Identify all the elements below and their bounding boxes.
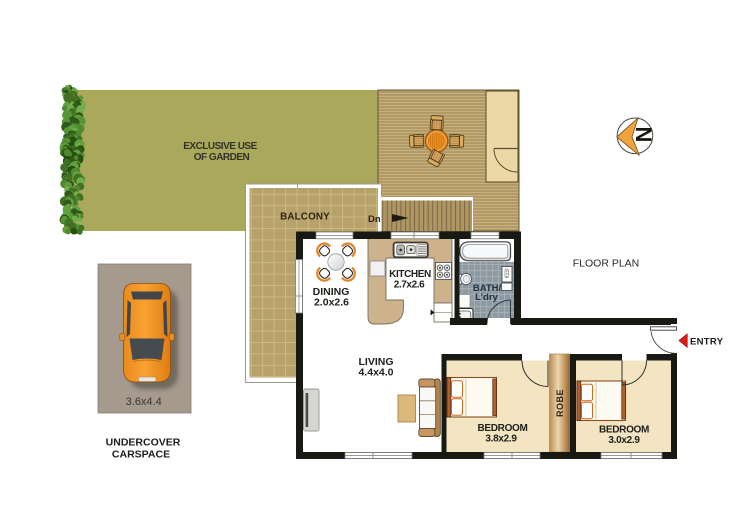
svg-text:BEDROOM: BEDROOM xyxy=(599,425,649,436)
svg-text:EXCLUSIVE USE: EXCLUSIVE USE xyxy=(183,141,257,152)
svg-text:2.0x2.6: 2.0x2.6 xyxy=(314,297,349,309)
svg-text:CARSPACE: CARSPACE xyxy=(112,449,170,461)
svg-text:3.6x4.4: 3.6x4.4 xyxy=(126,396,162,408)
svg-text:L’dry: L’dry xyxy=(475,292,498,303)
svg-text:BEDROOM: BEDROOM xyxy=(477,423,527,434)
svg-text:OF GARDEN: OF GARDEN xyxy=(194,152,250,163)
svg-text:2.7x2.6: 2.7x2.6 xyxy=(394,280,425,291)
svg-text:FLOOR PLAN: FLOOR PLAN xyxy=(573,258,640,270)
svg-text:4.4x4.0: 4.4x4.0 xyxy=(358,367,393,379)
svg-text:3.8x2.9: 3.8x2.9 xyxy=(485,434,517,445)
svg-text:BALCONY: BALCONY xyxy=(280,212,330,223)
svg-text:ROBE: ROBE xyxy=(555,389,565,417)
svg-text:ENTRY: ENTRY xyxy=(690,337,724,348)
svg-text:3.0x2.9: 3.0x2.9 xyxy=(608,435,640,446)
svg-text:KITCHEN: KITCHEN xyxy=(389,269,431,280)
svg-text:UNDERCOVER: UNDERCOVER xyxy=(106,437,181,449)
svg-text:N: N xyxy=(631,127,656,143)
svg-text:Dn: Dn xyxy=(368,214,381,225)
